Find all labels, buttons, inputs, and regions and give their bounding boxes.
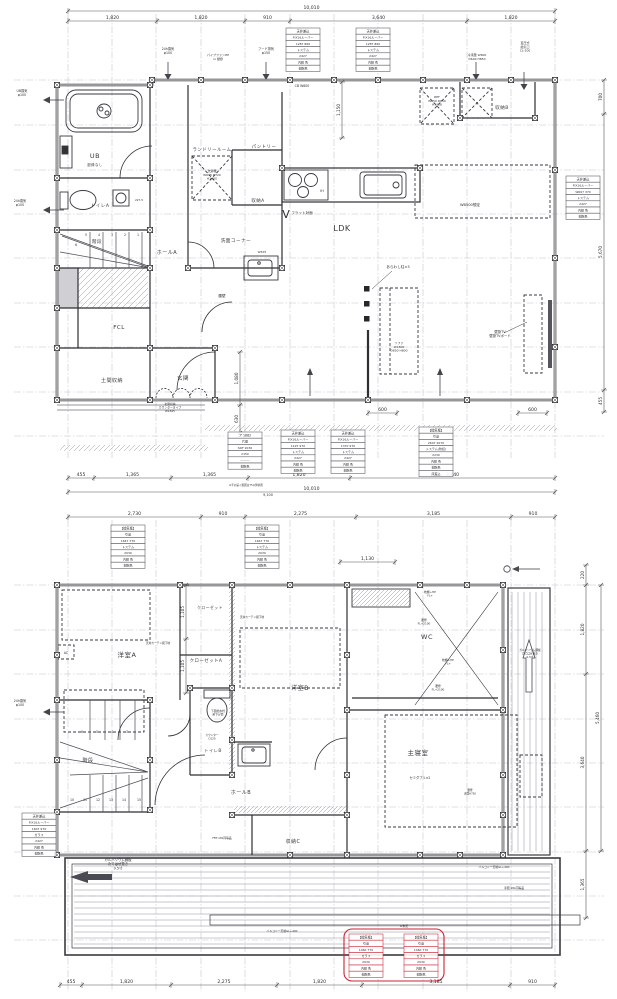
stair-number: 5 <box>85 233 87 237</box>
dim-label: 1,365 <box>126 472 139 478</box>
room-label-shinshitsu: 主寝室 <box>408 748 429 757</box>
stamp-row: 樹脂色 <box>298 66 307 71</box>
stamp-row: 樹脂色 <box>293 468 302 473</box>
stamp-row: 内観 色 <box>257 556 267 561</box>
dim-label: 3,640 <box>580 756 585 768</box>
sofa-icon <box>380 288 418 374</box>
stamp-row: 1460 770 <box>414 948 428 952</box>
stamp-row: 【換気框】 <box>428 427 444 432</box>
cooktop-icon <box>284 170 328 200</box>
stamp-row: ガラス <box>35 832 44 837</box>
stamp-row: 天井差込 <box>33 813 47 818</box>
stamp-row: 床差込 <box>431 471 440 476</box>
label-galva_r: ガルバリウム鋼板たてはぜ葺き0.5寸 <box>519 648 541 659</box>
stamp-row: トステム <box>297 47 309 52</box>
stamp-row: ——— <box>241 458 250 462</box>
stamp-row: FIX16ルーバー <box>288 438 308 442</box>
stamp-row: 樹脂色 <box>343 468 352 473</box>
room-label-hall-b: ホールB <box>231 790 252 796</box>
label-semi: セミダブル×2 <box>410 775 431 780</box>
stamp-row: 天井差込 <box>292 430 306 435</box>
dim-label: 700 <box>598 93 603 101</box>
floor2-stairs <box>60 700 148 812</box>
dim-label: 2,275 <box>294 511 307 517</box>
stamp-row: トステム <box>122 544 134 549</box>
dim-label: 3,185 <box>429 979 442 985</box>
stair-number: 2 <box>124 233 126 237</box>
stamp-row: トステム <box>342 449 354 454</box>
room-label-ub: UB <box>90 152 100 160</box>
label-suisen: 下図給水栓吊下げ管 <box>211 709 225 717</box>
toilet-b-icon <box>204 690 230 722</box>
downspout-icon <box>504 566 510 572</box>
stamp-row: 2150 <box>241 452 249 456</box>
room-label-closet: クローゼット <box>197 605 223 610</box>
room-label-storage-b: 収納B <box>495 104 509 111</box>
label-genkan_shuno: 玄関収納カウンタータイプW1645 <box>159 402 182 413</box>
label-kyuki: 直圧式給気口CL-200 <box>520 40 531 53</box>
stamp-row: 内観 色 <box>123 556 133 561</box>
dim-label: 10,010 <box>303 5 319 11</box>
stamp-row: 内観 色 <box>431 458 441 463</box>
stamp-row: FIX16ルーバー <box>293 36 313 40</box>
stair-tread-numbers: 6543216543101112131415 <box>70 233 141 802</box>
label-freezer: 冷凍庫 W600D600 H850 <box>468 52 487 61</box>
label-pipefan: パイプファンHPor 壁掛 <box>207 52 229 61</box>
label-counter: カウンターD120 <box>206 733 219 740</box>
stamp-row: 樹脂色 <box>578 214 587 219</box>
stamp-row: 内観 色 <box>416 965 426 970</box>
stamp-row: 2607 2070 <box>428 441 444 445</box>
stamp-row: 【換気框】 <box>254 525 270 530</box>
stamp-row: 樹脂色 <box>368 66 377 71</box>
room-label-stairs2: 階段 <box>82 757 93 764</box>
label-note75: ※手の届く範囲は75以降参照 <box>229 483 263 487</box>
room-label-ub-note: 廻縁なし <box>87 162 103 167</box>
dim-label: 5,670 <box>598 246 603 258</box>
room-label-wic: WC <box>421 633 433 641</box>
label-koshi3: 腰壁天端H750 <box>464 788 476 795</box>
stamp-row: 引違 <box>418 941 424 946</box>
stamp-row: 内観 色 <box>361 965 371 970</box>
label-w675: W675 <box>258 250 267 254</box>
label-koshi2: 腰壁FL+2100 <box>432 684 445 692</box>
stair-number: 15 <box>137 798 141 802</box>
stamp-row: FIX16ルーバー <box>338 438 358 442</box>
bathtub-icon <box>60 90 142 168</box>
dim-label: 910 <box>528 979 537 985</box>
stamp-row: 2427 <box>299 54 307 58</box>
dim-label: 2,275 <box>217 979 230 985</box>
floor1-walls <box>57 80 555 410</box>
stamp-row: 【換気框】 <box>358 934 374 939</box>
stair-number: 13 <box>109 798 113 802</box>
stamp-row: FIX16ルーバー <box>363 36 383 40</box>
dim-label: 910 <box>219 511 228 517</box>
dimension-lines: 10,0101,8201,8209103,6401,8204551,3651,3… <box>58 5 607 988</box>
floor-plan-drawing: UB 廻縁なし トイレA 階段 ホールA 洗面コーナー ランドリールーム パント… <box>0 0 617 999</box>
stamp-row: 片開 <box>242 439 248 444</box>
storage-b-icon <box>462 88 492 118</box>
stamp-row: SDF 2030 <box>238 446 253 450</box>
label-vent24_a: 24h換気φ100 <box>14 198 27 207</box>
wb500-zone <box>415 165 550 218</box>
stamp-row: W607 370 <box>575 190 590 194</box>
dim-label: 910 <box>263 15 272 21</box>
label-koshikabe: 腰壁 <box>218 293 226 298</box>
stamp-row: 内観 色 <box>343 461 353 466</box>
stamp-row: 2030 <box>124 551 132 555</box>
room-label-closet-a: クローゼットA <box>190 657 223 664</box>
stamp-row: ア 1882 <box>239 432 251 437</box>
stair-number: 1 <box>137 233 139 237</box>
label-gl1: バルコニー天端GL+400 <box>479 865 510 869</box>
label-vent24_top: 24h換気φ100 <box>162 46 175 55</box>
stamp-row: 1607 970 <box>32 827 46 831</box>
stamp-row: 1460 770 <box>359 948 373 952</box>
stair-number: 10 <box>70 798 74 802</box>
dim-label: 10,010 <box>303 486 319 492</box>
structural-grid <box>14 14 604 992</box>
dim-label: 630 <box>234 415 239 423</box>
dim-label: 1,365 <box>580 878 585 890</box>
stamp-row: 2427 <box>344 456 352 460</box>
stamp-row: 内観 色 <box>298 59 308 64</box>
dim-label: 1,820 <box>120 979 133 985</box>
stamp-row: 【換気框】 <box>413 934 429 939</box>
stair-number: 11 <box>83 798 87 802</box>
label-v_mark: V <box>282 208 290 221</box>
label-sofa: ソファW1800D850 H800 <box>391 340 408 353</box>
stair-number: 4 <box>111 730 113 734</box>
room-label-fcl: FCL <box>113 325 125 331</box>
dim-label: 455 <box>77 472 86 478</box>
label-ac: AC <box>64 651 69 655</box>
room-label-toilet-a: トイレA <box>91 203 110 209</box>
stamp-row: 1370 970 <box>341 444 355 448</box>
stair-number: 3 <box>126 730 128 734</box>
dim-label: 1,150 <box>336 104 341 116</box>
label-koshi1: 腰壁FL+2100 <box>418 618 431 626</box>
label-makura1: 枕棚+HPFL+ <box>424 590 436 598</box>
annotations: UB換気φ10024h換気φ10024h換気φ100パイプファンHPor 壁掛フ… <box>14 40 541 933</box>
stamp-row: 天井差込 <box>367 28 381 33</box>
stamp-row: 天井差込 <box>342 430 356 435</box>
label-ref: REFW650 D650H1828 <box>428 95 446 107</box>
stamp-row: 2230 <box>432 453 440 457</box>
stamp-row: 樹脂色 <box>416 972 425 977</box>
stamp-row: 内観 色 <box>578 207 588 212</box>
wic-shelf <box>352 589 410 607</box>
stamp-row: 1287 860 <box>366 42 380 46</box>
dim-label: 600 <box>528 407 537 413</box>
stamp-row: 樹脂色 <box>240 463 249 468</box>
dim-label: 600 <box>378 407 387 413</box>
stair-number: 6 <box>75 243 77 247</box>
stamp-row: トステム(防犯) <box>426 446 446 451</box>
stamp-row: 天井差込 <box>297 28 311 33</box>
stamp-row: 引違 <box>363 941 369 946</box>
label-curtain1: 天井カーテン開下地 <box>146 641 170 645</box>
dim-label: 1,820 <box>504 15 517 21</box>
dim-label: 1,130 <box>361 556 374 562</box>
room-label-yoshitsu-a: 洋室A <box>118 650 137 659</box>
label-araw: あらわし柱×3 <box>386 264 409 269</box>
hatch-areas <box>57 268 557 944</box>
stamp-row: 2427 <box>369 54 377 58</box>
stair-number: 14 <box>122 798 126 802</box>
stamp-row: 2427 <box>294 456 302 460</box>
stamp-row: 樹脂色 <box>34 851 43 856</box>
stamp-row: 内観 色 <box>368 59 378 64</box>
stamp-row: 1647 770 <box>121 539 135 543</box>
dim-label: 3,185 <box>427 511 440 517</box>
dim-label: 1,820 <box>106 15 119 21</box>
label-cb: CB W600 <box>295 84 310 88</box>
stamp-row: ガラス <box>417 953 426 958</box>
dim-label: 1,080 <box>234 372 239 384</box>
dim-label: 455 <box>67 979 76 985</box>
label-vent24: 24h換気φ100 <box>14 698 27 707</box>
stamp-row: 樹脂色 <box>123 563 132 568</box>
label-tesuri: 手摺:18L同等品 <box>504 886 524 890</box>
label-mitei: ※未定 <box>400 923 409 928</box>
roof-slope-arrow-left <box>70 871 112 883</box>
label-tv: 壁掛TV壁掛TVボード <box>489 329 510 338</box>
room-label-doma: 土間収納 <box>101 377 123 384</box>
room-label-genkan: 玄関 <box>177 374 189 382</box>
room-label-senmen: 洗面コーナー <box>221 237 252 244</box>
dim-label: 2,730 <box>128 511 141 517</box>
dim-label: 5,460 <box>595 712 600 724</box>
stamp-row: 樹脂色 <box>361 972 370 977</box>
stamp-row: 1197 970 <box>291 444 305 448</box>
stamp-row: トステム <box>292 449 304 454</box>
label-ih: IH <box>320 189 324 193</box>
dim-label: 1,820 <box>313 979 326 985</box>
room-label-ldk: LDK <box>333 224 351 233</box>
room-label-pantry: パントリー <box>252 144 277 150</box>
label-galva_b: ガルバリウム鋼板たてはぜ葺き0.5寸 <box>104 857 132 870</box>
stamp-row: 2427 <box>35 839 43 843</box>
room-label-stairs1: 階段 <box>92 238 102 245</box>
room-label-storage-a: 収納A <box>251 197 264 204</box>
stamp-row: 引違 <box>259 532 265 537</box>
kitchen-sink-icon <box>360 172 406 198</box>
label-total2: 9,100 <box>263 493 273 497</box>
label-ub_vent: UB換気φ100 <box>17 88 29 97</box>
room-label-yoshitsu-b: 洋室B <box>291 684 309 692</box>
tv-board-icon <box>524 295 552 373</box>
label-wb500: WB500想定 <box>460 202 480 207</box>
room-label-hall-a: ホールA <box>157 250 178 256</box>
dim-label: 1,820 <box>194 15 207 21</box>
stamp-row: 内観 色 <box>34 844 44 849</box>
label-gl2: バルコニー天端GL+400 <box>267 929 298 933</box>
room-label-laundry: ランドリールーム <box>193 147 232 153</box>
stamp-row: 引違 <box>433 434 439 439</box>
dim-label: 1,105 <box>180 606 185 618</box>
dim-label: 1,820 <box>580 623 585 635</box>
stamp-row: 天井差込 <box>577 176 591 181</box>
dim-label: 3,640 <box>372 15 385 21</box>
stamp-row: 引違 <box>125 532 131 537</box>
stamp-row: 樹脂色 <box>431 465 440 470</box>
dim-label: 220 <box>580 571 585 579</box>
stair-number: 6 <box>81 730 83 734</box>
dim-label: 455 <box>598 397 603 405</box>
stamp-row: トステム <box>367 47 379 52</box>
label-curtain2: 天井カーテン開下地 <box>240 615 264 619</box>
stair-number: 4 <box>98 233 100 237</box>
stamp-row: トステム <box>577 195 589 200</box>
stamp-row: ガラス <box>362 953 371 958</box>
stamp-row: 1287 860 <box>296 42 310 46</box>
stamp-row: トステム <box>256 544 268 549</box>
label-makura2: 枕棚+HPFL+ <box>442 658 454 666</box>
stair-number: 12 <box>96 798 100 802</box>
vent-arrows <box>43 62 528 716</box>
stair-number: 3 <box>111 233 113 237</box>
label-ffp: FFP:18L同等品 <box>212 836 232 840</box>
label-d227: 227.5 <box>135 198 143 202</box>
label-flat: フラット対面 <box>291 210 313 215</box>
bed-master-icon <box>385 715 542 827</box>
stamp-row: FIX16ルーバー <box>29 821 49 825</box>
stamp-row: 1647 770 <box>255 539 269 543</box>
room-label-toilet-b: トイレB <box>204 748 221 753</box>
floor2-walls <box>57 585 503 855</box>
dim-label: 910 <box>529 511 538 517</box>
stamp-row: 【換気框】 <box>120 525 136 530</box>
floor-plan-sheet: UB 廻縁なし トイレA 階段 ホールA 洗面コーナー ランドリールーム パント… <box>0 0 617 999</box>
stamp-row: 内観 色 <box>293 461 303 466</box>
stair-number: 5 <box>96 730 98 734</box>
stamp-row: 樹脂色 <box>257 563 266 568</box>
stamp-row: 2030 <box>362 960 370 964</box>
floor1-stairs <box>60 232 150 268</box>
floor1-fixtures <box>60 88 552 374</box>
stamp-row: 2030 <box>417 960 425 964</box>
room-label-storage-c: 収納C <box>286 838 301 845</box>
dim-label: 1,105 <box>180 660 185 672</box>
stamp-row: FIX16ルーバー <box>573 184 593 188</box>
label-hood: フード排気φ150 <box>258 46 275 55</box>
washbasin2-icon <box>238 744 270 766</box>
stamp-row: 2030 <box>258 551 266 555</box>
dim-label: 1,365 <box>203 472 216 478</box>
stamp-row: 2427 <box>579 202 587 206</box>
